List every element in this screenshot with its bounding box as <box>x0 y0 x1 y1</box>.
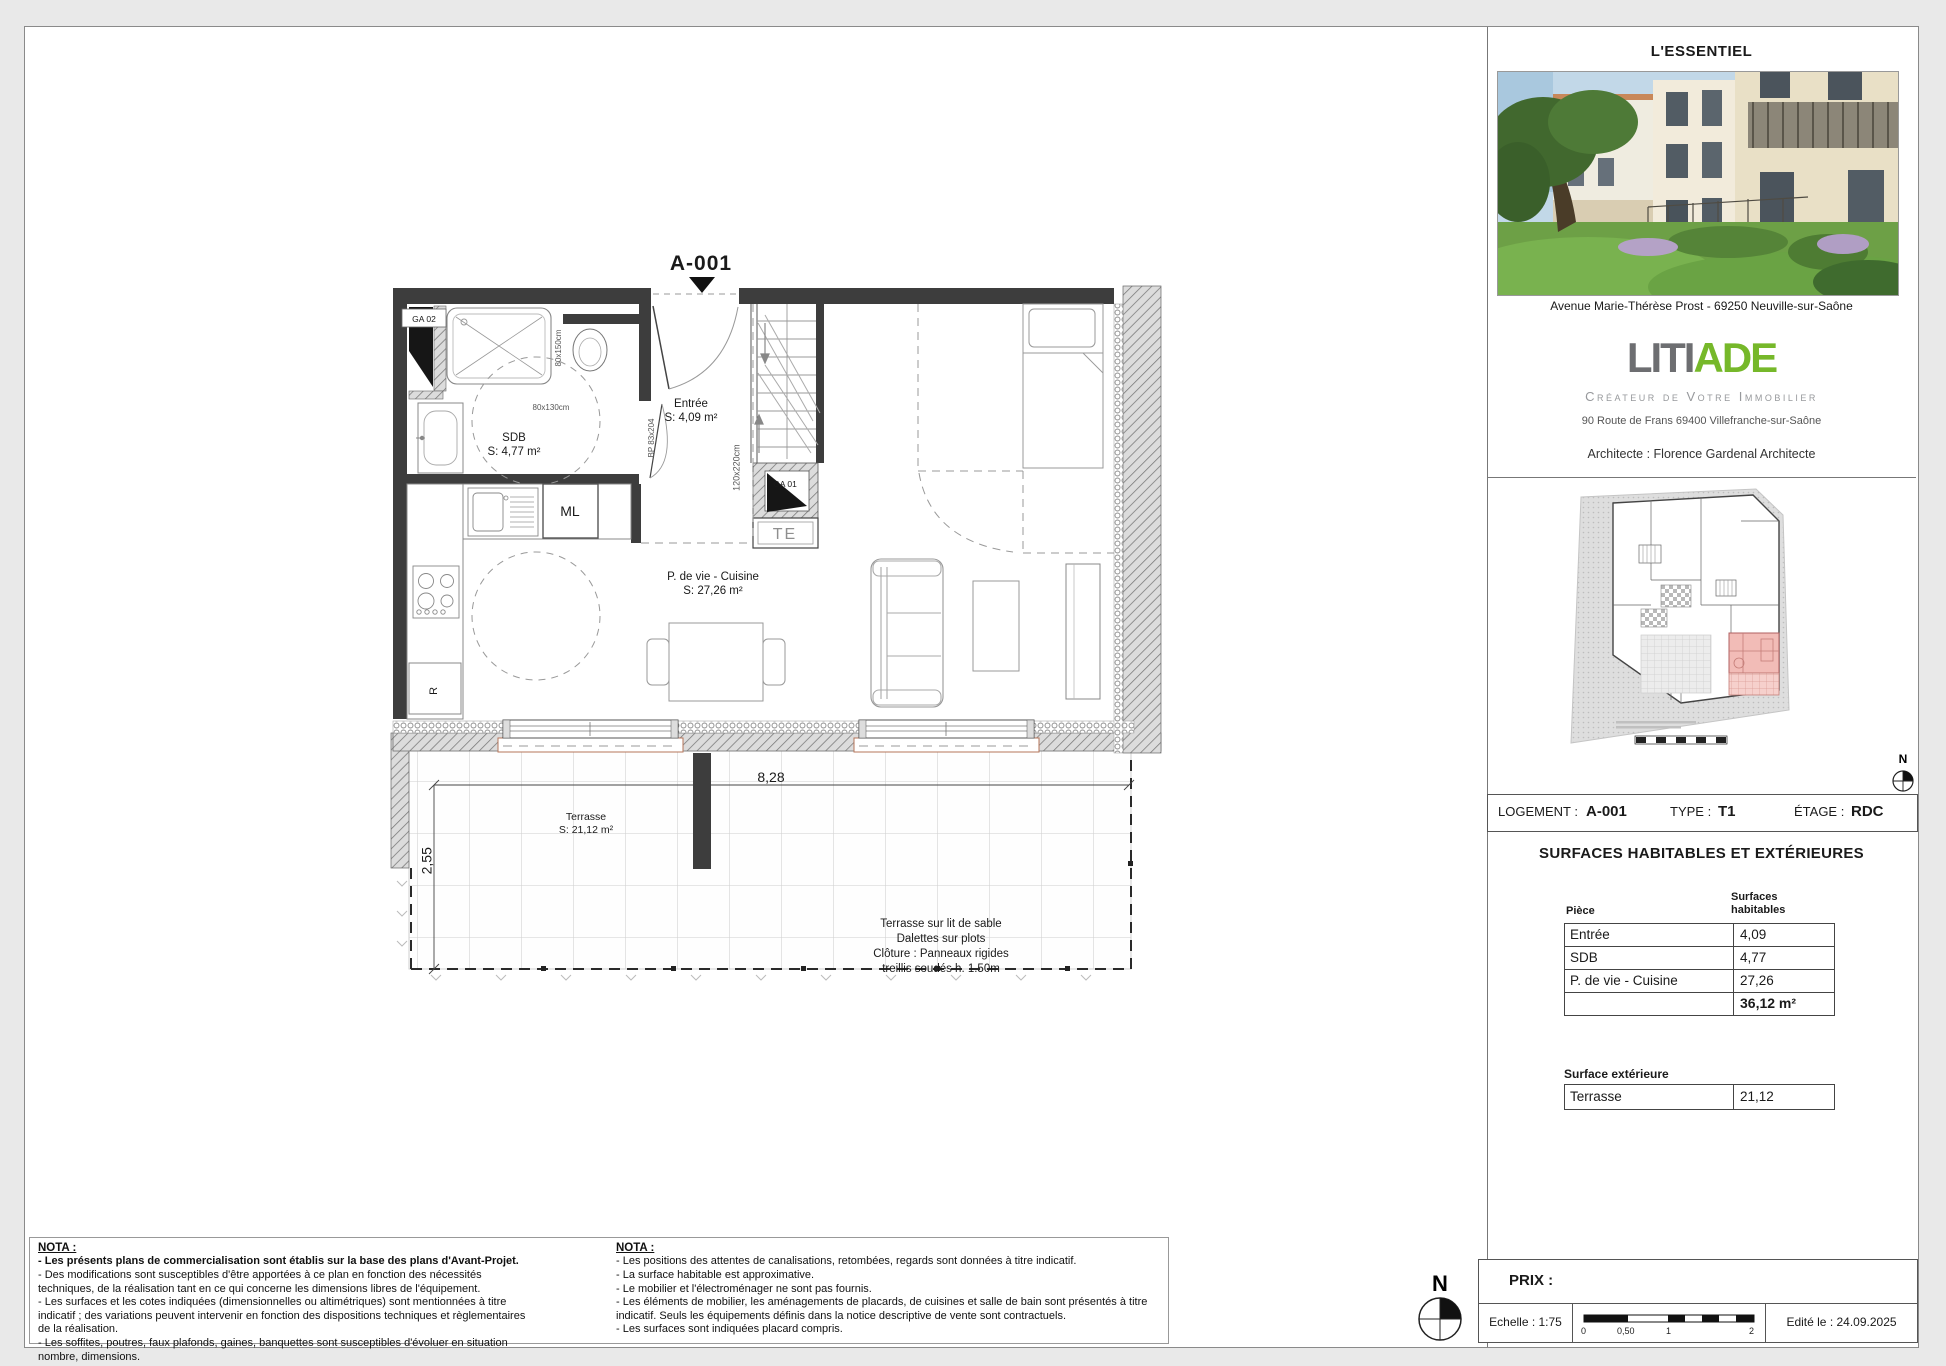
etage-label: ÉTAGE : <box>1794 804 1844 819</box>
ml-label: ML <box>540 503 600 521</box>
litiade-logo: LITIADE <box>1487 337 1916 379</box>
logement-row: LOGEMENT : A-001 TYPE : T1 ÉTAGE : RDC <box>1487 794 1918 832</box>
toilet <box>573 329 607 371</box>
te-label: TE <box>755 525 815 545</box>
site-plan-thumbnail <box>1521 485 1901 785</box>
door-dim-label: BP 83x204 <box>647 409 657 467</box>
logo-address: 90 Route de Frans 69400 Villefranche-sur… <box>1487 415 1916 427</box>
scale-tick: 1 <box>1666 1326 1671 1336</box>
table-row: SDB 4,77 <box>1565 947 1834 970</box>
nota-box: NOTA : - Les présents plans de commercia… <box>29 1237 1169 1344</box>
type-value: T1 <box>1718 803 1736 820</box>
washbasin <box>416 403 463 473</box>
room-living: P. de vie - Cuisine S: 27,26 m² <box>643 570 783 599</box>
col-surfaces-line2: habitables <box>1731 904 1785 917</box>
room-living-name: P. de vie - Cuisine <box>643 570 783 584</box>
fridge-label: R <box>428 676 442 706</box>
plan-sheet: { "plan": { "unit": "A-001", "rooms": [ … <box>0 0 1946 1366</box>
terrace-note-line3: Clôture : Panneaux rigides <box>831 947 1051 962</box>
shower <box>447 308 551 384</box>
room-terrasse: Terrasse S: 21,12 m² <box>536 811 636 837</box>
nota2-item: - Les positions des attentes de canalisa… <box>616 1255 1161 1269</box>
row-name: Entrée <box>1565 924 1734 946</box>
terrace-note-line4: treillis soudés h. 1.50m <box>831 962 1051 977</box>
room-living-area: S: 27,26 m² <box>643 584 783 598</box>
terrace-note: Terrasse sur lit de sable Dalettes sur p… <box>831 917 1051 977</box>
site-north-letter: N <box>1899 752 1908 766</box>
panel-divider <box>1487 477 1916 478</box>
terrace-note-line1: Terrasse sur lit de sable <box>831 917 1051 932</box>
floor-plan-drawing <box>381 216 1171 1006</box>
entrance-door <box>653 294 738 389</box>
coffee-table <box>973 581 1019 671</box>
north-compass-icon: N <box>1413 1265 1473 1351</box>
shower-dim-label: 80x150cm <box>554 318 564 378</box>
table-row: P. de vie - Cuisine 27,26 <box>1565 970 1834 993</box>
row-name: P. de vie - Cuisine <box>1565 970 1734 992</box>
nota-column-1: NOTA : - Les présents plans de commercia… <box>38 1241 530 1364</box>
scalebar-cell: 0 0,50 1 2 <box>1573 1304 1766 1342</box>
room-sdb-area: S: 4,77 m² <box>474 445 554 459</box>
col-surfaces-line1: Surfaces <box>1731 891 1785 904</box>
etage-value: RDC <box>1851 803 1884 820</box>
stairwell <box>751 304 820 463</box>
row-name: SDB <box>1565 947 1734 969</box>
nota2-item: - Le mobilier et l'électroménager ne son… <box>616 1283 1161 1297</box>
plan-unit-label: A-001 <box>641 251 761 277</box>
logo-tagline: Créateur de Votre Immobilier <box>1487 389 1916 404</box>
terrace-note-line2: Dalettes sur plots <box>831 932 1051 947</box>
surfaces-title: SURFACES HABITABLES ET EXTÉRIEURES <box>1487 845 1916 862</box>
room-sdb: SDB S: 4,77 m² <box>474 431 554 460</box>
kitchen-turning-circle <box>472 552 600 680</box>
table-row: Terrasse 21,12 <box>1565 1085 1834 1109</box>
edited-date: Edité le : 24.09.2025 <box>1766 1304 1917 1342</box>
terrace-depth-label: 2,55 <box>418 836 436 886</box>
prix-box: PRIX : <box>1478 1259 1918 1305</box>
table-total-row: 36,12 m² <box>1565 993 1834 1015</box>
unit-pointer <box>689 277 715 293</box>
nota1-item: - Des modifications sont susceptibles d'… <box>38 1269 530 1296</box>
nota1-item: - Les soffites, poutres, faux plafonds, … <box>38 1337 530 1364</box>
nota-column-2: NOTA : - Les positions des attentes de c… <box>616 1241 1161 1337</box>
architect-line: Architecte : Florence Gardenal Architect… <box>1487 447 1916 461</box>
ga02-label: GA 02 <box>403 314 445 325</box>
row-value: 4,09 <box>1734 924 1834 946</box>
nota1-title: NOTA : <box>38 1241 530 1255</box>
ext-surface-title: Surface extérieure <box>1564 1067 1669 1081</box>
total-empty-cell <box>1565 993 1734 1015</box>
nota2-item: - Les surfaces sont indiquées placard co… <box>616 1323 1161 1337</box>
room-sdb-name: SDB <box>474 431 554 445</box>
total-value: 36,12 m² <box>1734 993 1834 1015</box>
nota2-item: - Les éléments de mobilier, les aménagem… <box>616 1296 1161 1323</box>
col-piece-header: Pièce <box>1566 905 1595 918</box>
window-living <box>854 720 1039 752</box>
tv-unit <box>1066 564 1100 699</box>
scale-row: Echelle : 1:75 0 0,50 1 2 Edité le : 24.… <box>1478 1303 1918 1343</box>
room-terrasse-area: S: 21,12 m² <box>536 824 636 837</box>
room-terrasse-name: Terrasse <box>536 811 636 824</box>
scale-bar <box>1583 1314 1757 1324</box>
window-kitchen <box>498 720 683 752</box>
stair-opening-label: 120x220cm <box>731 433 742 503</box>
logement-label: LOGEMENT : <box>1498 804 1578 819</box>
bed <box>1023 304 1103 468</box>
building-photo <box>1497 71 1899 296</box>
scale-tick: 0,50 <box>1617 1326 1635 1336</box>
row-name: Terrasse <box>1565 1085 1734 1109</box>
north-letter: N <box>1432 1271 1448 1296</box>
logo-part1: LITI <box>1627 334 1694 381</box>
bath-clearance-label: 80x130cm <box>511 403 591 413</box>
nota2-item: - La surface habitable est approximative… <box>616 1269 1161 1283</box>
row-value: 4,77 <box>1734 947 1834 969</box>
ext-surface-table: Terrasse 21,12 <box>1564 1084 1835 1110</box>
project-address: Avenue Marie-Thérèse Prost - 69250 Neuvi… <box>1487 299 1916 313</box>
table-row: Entrée 4,09 <box>1565 924 1834 947</box>
cooktop <box>413 566 459 618</box>
row-value: 27,26 <box>1734 970 1834 992</box>
col-surfaces-header: Surfaces habitables <box>1731 891 1785 916</box>
nota1-item: - Les surfaces et les cotes indiquées (d… <box>38 1296 530 1337</box>
ga01-duct <box>753 463 818 518</box>
scale-tick: 2 <box>1749 1326 1754 1336</box>
nota1-item: - Les présents plans de commercialisatio… <box>38 1255 530 1269</box>
sheet-page: A-001 GA 02 80x150cm 80x130cm SDB S: 4,7… <box>24 26 1919 1348</box>
echelle-cell: Echelle : 1:75 <box>1479 1304 1573 1342</box>
nota2-title: NOTA : <box>616 1241 1161 1255</box>
ga01-label: GA 01 <box>755 479 815 490</box>
type-label: TYPE : <box>1670 804 1711 819</box>
scale-tick: 0 <box>1581 1326 1586 1336</box>
essentiel-title: L'ESSENTIEL <box>1487 43 1916 60</box>
row-value: 21,12 <box>1734 1085 1834 1109</box>
surfaces-table: Entrée 4,09 SDB 4,77 P. de vie - Cuisine… <box>1564 923 1835 1016</box>
logement-value: A-001 <box>1586 803 1627 820</box>
sofa <box>871 559 943 707</box>
logo-part2: ADE <box>1693 334 1776 381</box>
sidebar-divider <box>1487 27 1488 1347</box>
dining-set <box>647 623 785 701</box>
terrace-width-label: 8,28 <box>731 769 811 787</box>
prix-label: PRIX : <box>1509 1272 1553 1289</box>
